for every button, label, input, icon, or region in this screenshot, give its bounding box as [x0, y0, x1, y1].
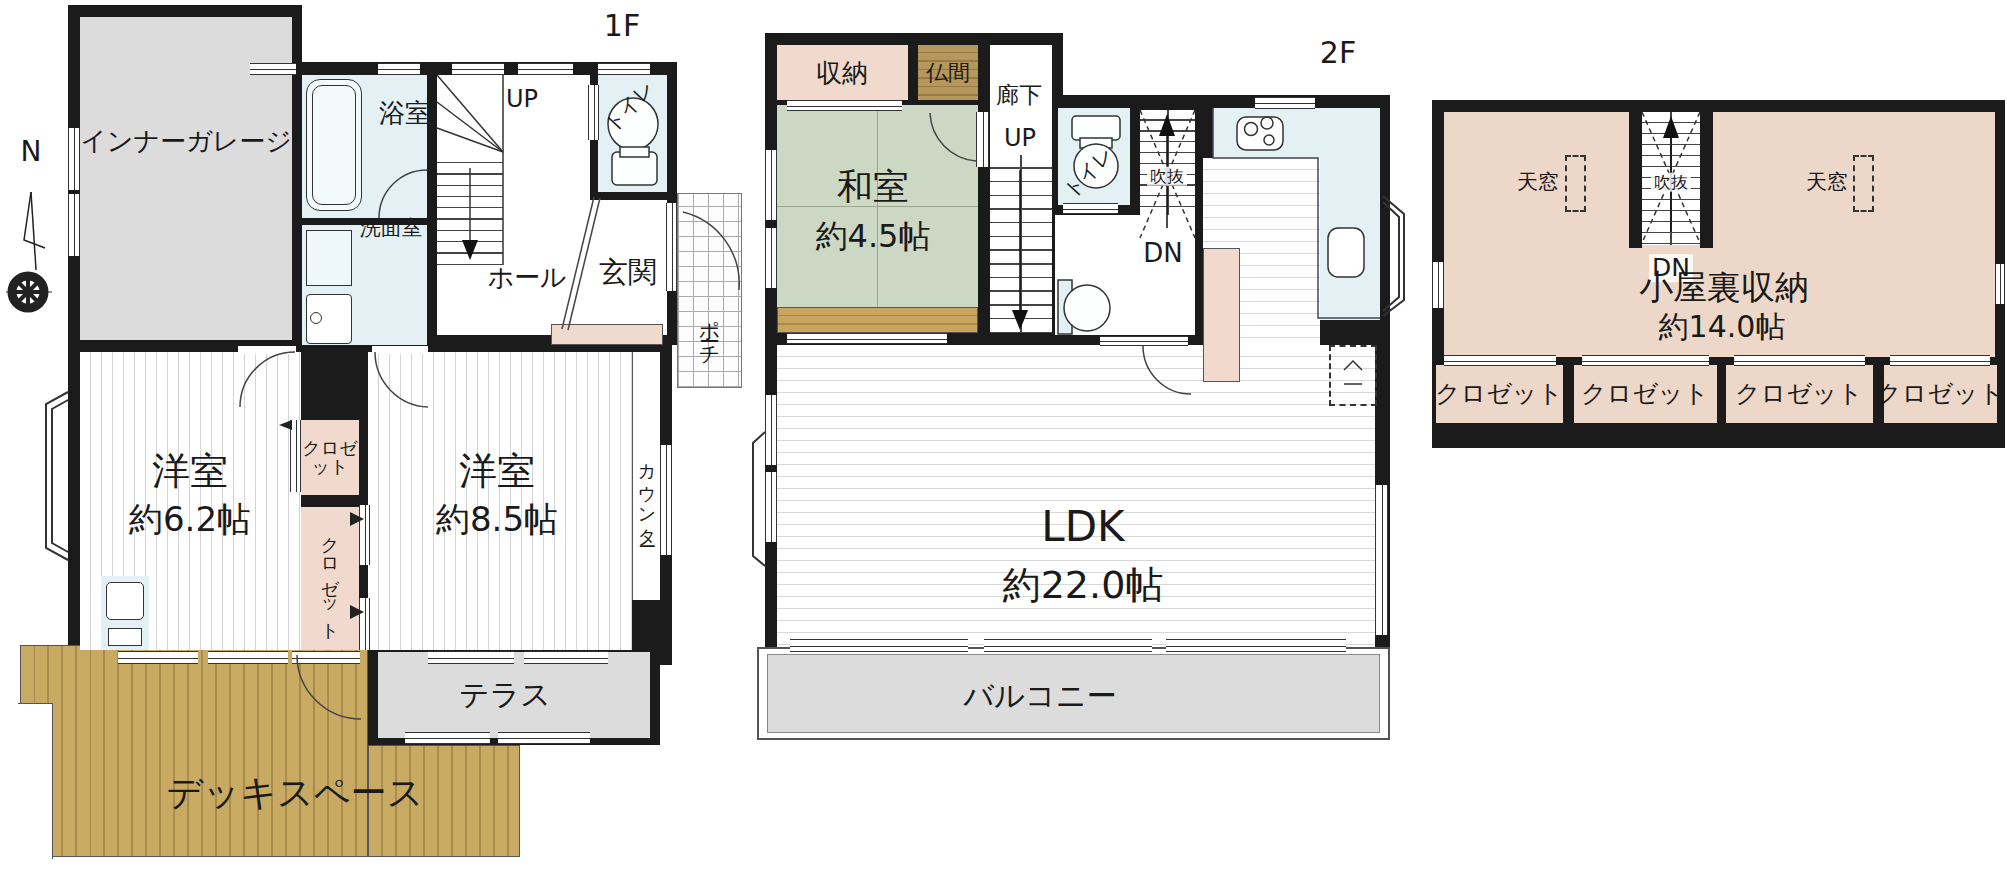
ldk-window-right — [1375, 485, 1388, 635]
deck-notch — [18, 703, 53, 859]
bedroom85-size: 約8.5帖 — [436, 501, 558, 538]
closet-lower-door-2 — [359, 598, 370, 650]
bedroom62-window-2 — [208, 651, 288, 664]
deck-label: デッキスペース — [166, 773, 423, 813]
bedroom62-window-1 — [118, 651, 198, 664]
stairs-up-2f-label: UP — [1004, 125, 1036, 151]
front-door — [666, 203, 677, 291]
void-attic-label: 吹抜 — [1651, 173, 1691, 192]
stairs-1f — [437, 152, 503, 265]
porch-label: ポーチ — [697, 305, 720, 356]
deck-floor — [20, 645, 368, 857]
bedroom62-vanity — [106, 582, 144, 620]
storage-label: 収納 — [816, 59, 868, 88]
attic-closet-2-label: クロゼット — [1581, 380, 1709, 408]
compass-icon — [6, 192, 52, 308]
bedroom85-name: 洋室 — [459, 451, 535, 493]
floor-plan: N 1F インナーガレージ 浴室 洗面室 UP ホール トイレ 玄関 ポーチ 洋… — [0, 0, 2007, 870]
attic-closet-3-label: クロゼット — [1735, 380, 1863, 408]
skylight-right-box — [1853, 155, 1874, 212]
attic-closet-door-3 — [1734, 355, 1865, 366]
attic-window-right — [1995, 264, 2005, 304]
hall-label: ホール — [487, 263, 566, 292]
ldk-window-left-2 — [765, 472, 777, 542]
skylight-left-label: 天窓 — [1517, 171, 1559, 194]
bathtub — [306, 79, 362, 211]
attic-room-size: 約14.0帖 — [1659, 310, 1786, 343]
bedroom85-window — [660, 445, 672, 555]
attic-room-name: 小屋裏収納 — [1639, 269, 1809, 306]
altar-room-label: 仏間 — [926, 61, 970, 85]
void-2f-label: 吹抜 — [1147, 167, 1187, 186]
hall-bedroom62-door — [238, 346, 296, 354]
skylight-right-label: 天窓 — [1806, 171, 1848, 194]
attic-closet-1-label: クロゼット — [1435, 380, 1563, 408]
closet-lower-door-1 — [359, 505, 370, 565]
stair-window-2 — [518, 63, 573, 75]
washitsu-size: 約4.5帖 — [816, 219, 931, 254]
bay-window-bedroom62 — [46, 392, 68, 560]
stair-window-1 — [452, 63, 504, 75]
washbasin-room-door — [1100, 336, 1188, 346]
ldk-bay-window — [753, 432, 765, 566]
floor2-tag: 2F — [1320, 36, 1356, 69]
balcony-door-1 — [790, 639, 968, 652]
terrace-window-3 — [405, 732, 490, 744]
bath-label: 浴室 — [379, 99, 431, 128]
porch-floor — [677, 193, 742, 388]
toilet2-door — [1063, 203, 1118, 214]
toilet1-window — [598, 63, 650, 75]
terrace-window-2 — [524, 651, 608, 664]
balcony-label: バルコニー — [964, 679, 1117, 712]
stairs-2f-centerline — [1020, 155, 1022, 333]
bathtub-inner — [312, 85, 356, 205]
closet-lower-label: クロゼット — [320, 524, 340, 632]
deck-door — [292, 651, 360, 664]
counter-label: カウンター — [637, 452, 657, 539]
bedroom62-cabinet — [108, 628, 142, 646]
washbasin-room-floor — [1055, 215, 1195, 335]
attic-closet-door-1 — [1444, 355, 1556, 366]
terrace-window-4 — [498, 732, 590, 744]
kitchen-counter-top — [1213, 108, 1380, 158]
entrance-label: 玄関 — [599, 257, 657, 289]
terrace-window-1 — [428, 651, 514, 664]
ldk-window-left-1 — [765, 395, 777, 465]
washitsu-door — [976, 112, 989, 167]
washitsu-window-2 — [765, 228, 777, 288]
closet-upper-door — [290, 420, 301, 492]
compass-north-label: N — [21, 137, 42, 168]
kitchen-counter-right — [1320, 158, 1380, 320]
bedroom62-size: 約6.2帖 — [129, 501, 251, 538]
storage-sliding-door — [787, 100, 902, 111]
floor1-tag: 1F — [604, 9, 640, 42]
kitchen-window — [1255, 97, 1315, 109]
balcony-door-3 — [1166, 639, 1346, 652]
closet-upper-label: クロゼット — [301, 438, 359, 477]
toilet1-door — [588, 85, 599, 140]
attic-closet-door-4 — [1890, 355, 1990, 366]
ldk-counter — [1203, 248, 1240, 382]
attic-window-left — [1432, 262, 1444, 308]
attic-stairs-wall-left — [1629, 100, 1642, 248]
washroom-label: 洗面室 — [360, 217, 423, 240]
bath-window-2 — [378, 63, 420, 75]
washitsu-window-1 — [765, 150, 777, 220]
stairs-down-2f-label: DN — [1143, 239, 1182, 268]
washitsu-wood-strip — [777, 307, 978, 333]
shoe-cabinet — [551, 324, 663, 345]
bedroom62-name: 洋室 — [152, 451, 228, 493]
garage-label: インナーガレージ — [80, 127, 292, 156]
attic-closet-4-label: クロゼット — [1876, 380, 2004, 408]
skylight-left-box — [1565, 155, 1586, 212]
terrace-label: テラス — [459, 678, 551, 711]
stairs-up-1f-label: UP — [506, 86, 538, 112]
attic-closet-door-2 — [1582, 355, 1709, 366]
garage-window-1 — [68, 128, 80, 190]
corridor-label: 廊下 — [996, 83, 1042, 108]
ldk-name: LDK — [1041, 504, 1124, 550]
garage-window-2 — [68, 194, 80, 256]
ldk-size: 約22.0帖 — [1003, 565, 1164, 607]
balcony-door-2 — [984, 639, 1152, 652]
vanity-1f-faucet — [310, 312, 322, 324]
bath-window — [250, 63, 296, 75]
washitsu-name: 和室 — [837, 167, 909, 207]
washing-machine — [306, 230, 352, 286]
ceiling-hatch — [1329, 345, 1377, 406]
hall-bedroom85-door — [372, 346, 428, 354]
washitsu-sliding-door — [787, 333, 947, 344]
attic-stairs-wall-right — [1700, 100, 1713, 248]
